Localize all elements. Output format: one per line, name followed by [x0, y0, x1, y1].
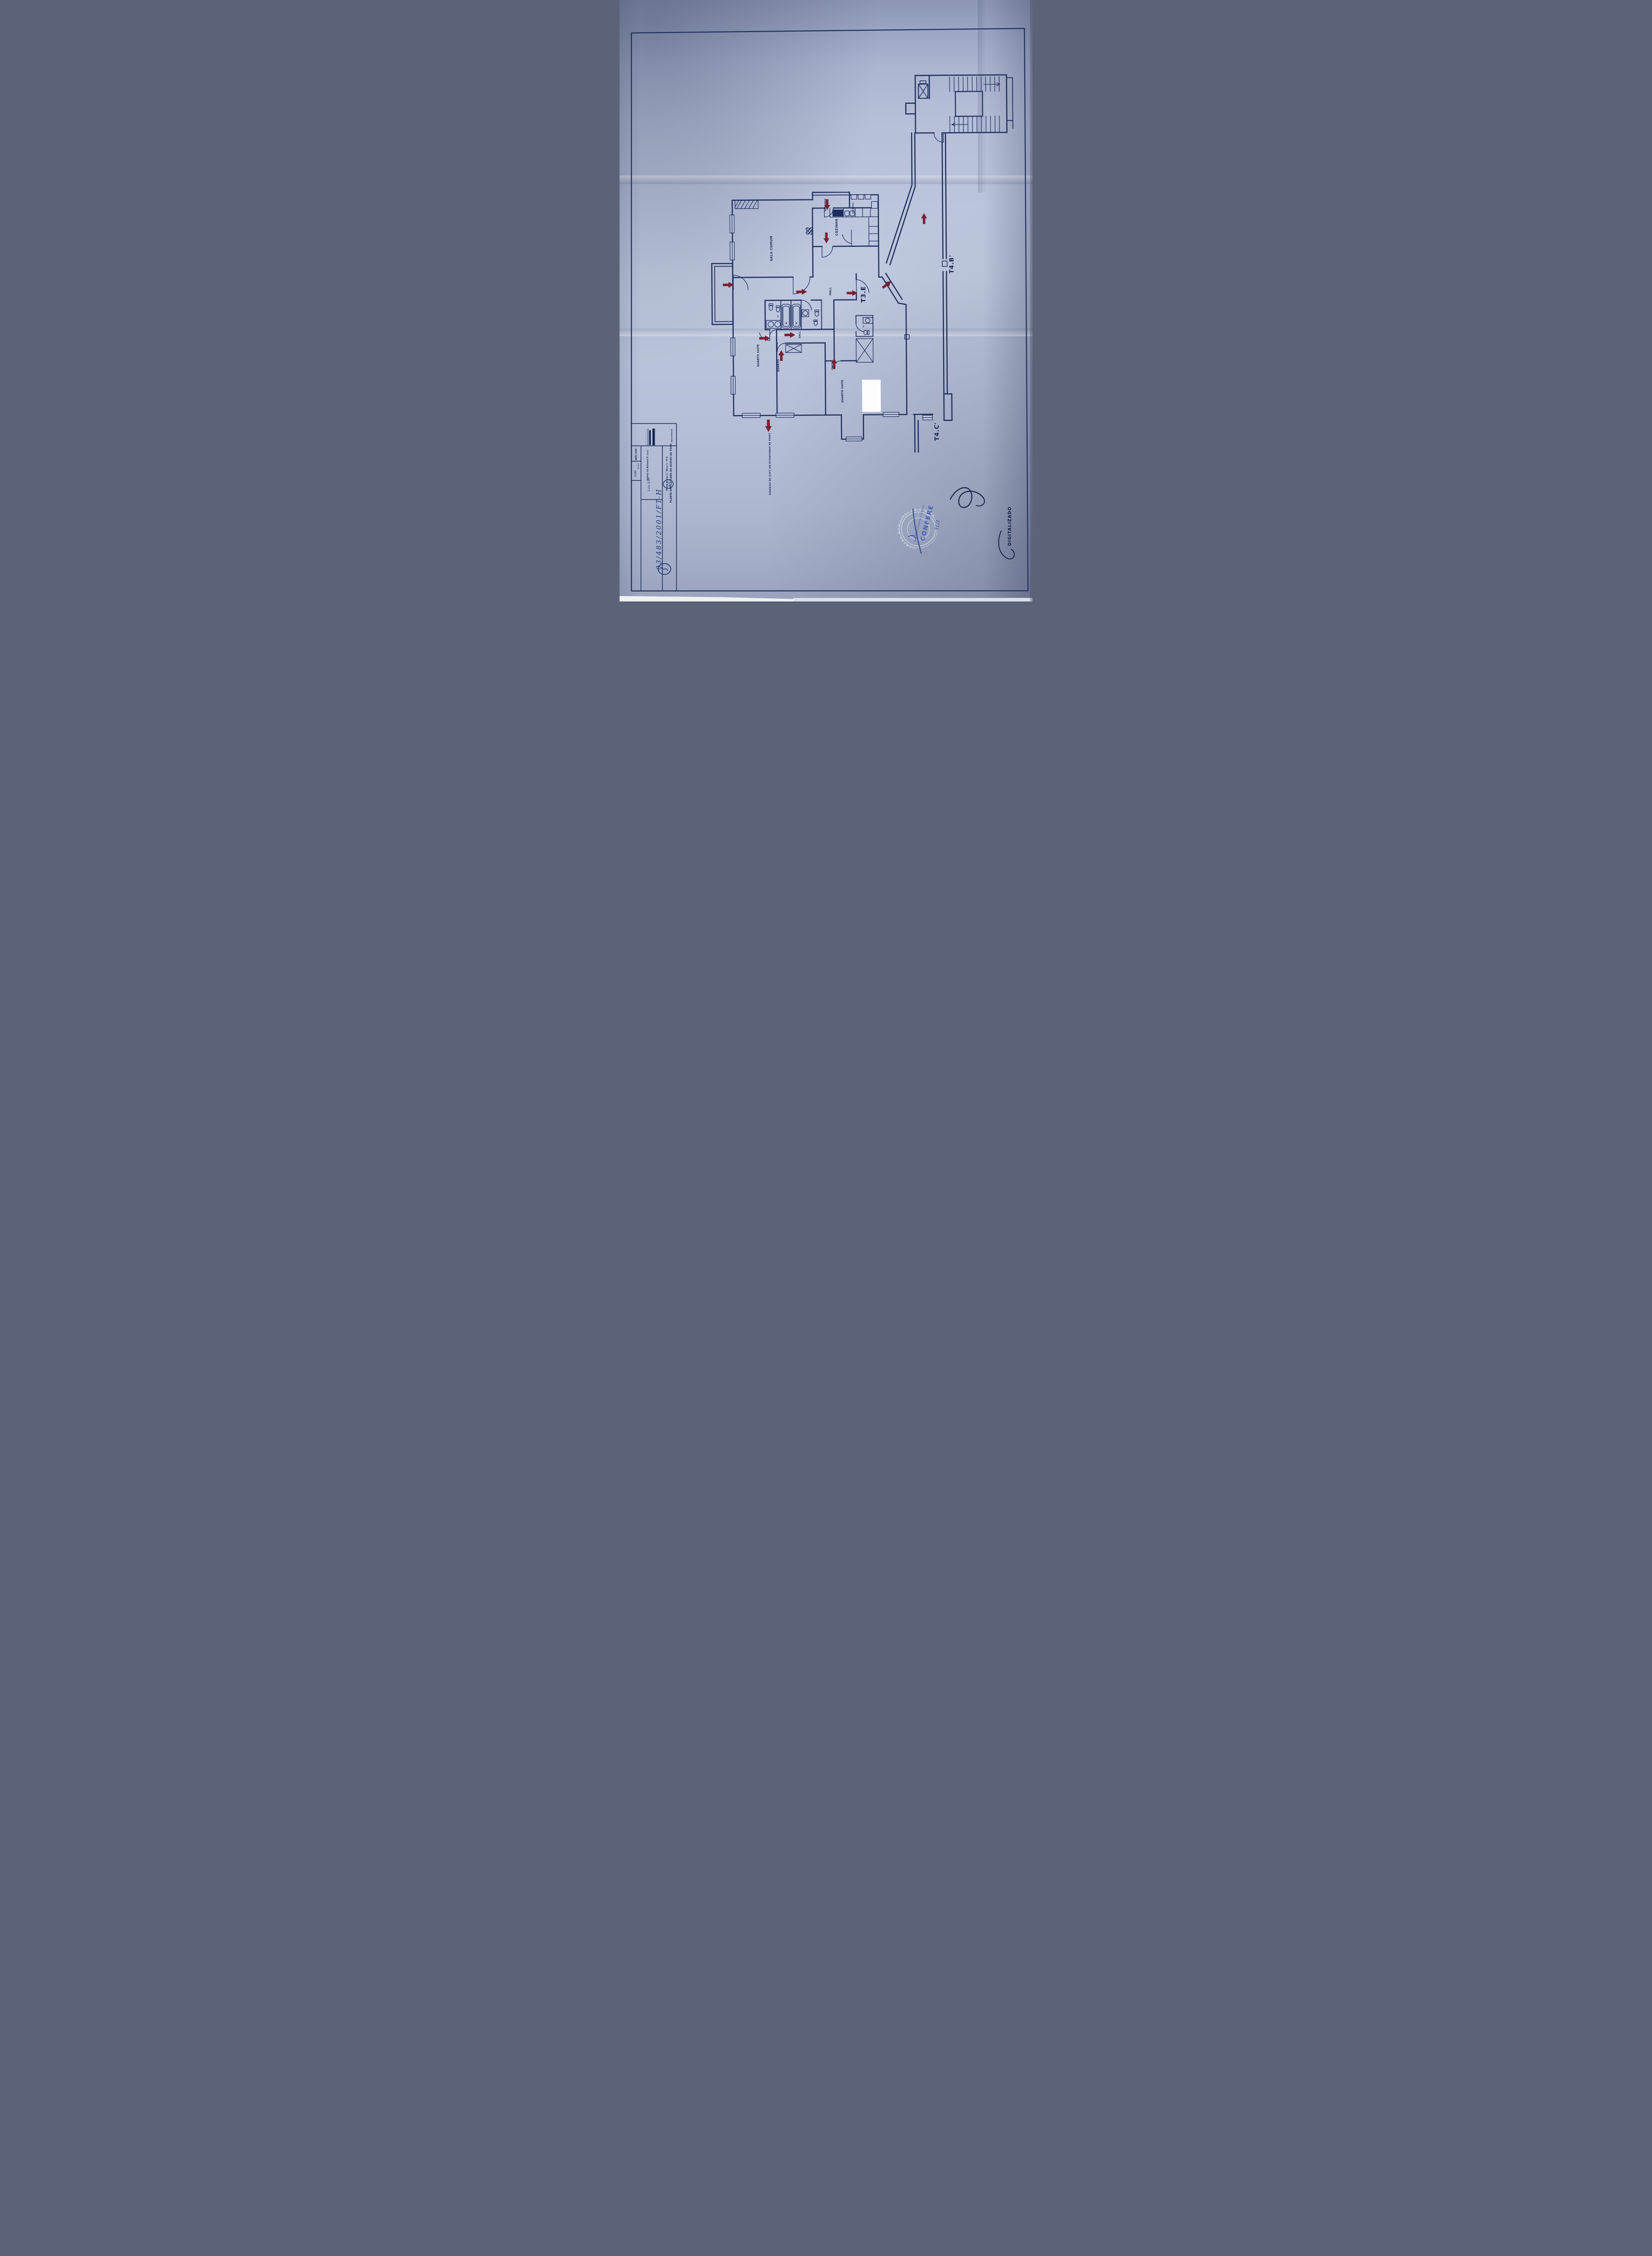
redaction-patch	[862, 380, 881, 412]
exit-arrow	[784, 332, 795, 338]
plan-title: PLANTA SIMPLIFICADA DO ACESSO AO FOGO	[670, 443, 673, 503]
sink-icon	[845, 211, 849, 216]
requerente-logo	[646, 429, 655, 445]
local-label: LOCAL	[647, 449, 648, 456]
scale-value: 1:100	[634, 471, 637, 477]
doors	[733, 208, 870, 371]
room-label-is2: I.S.	[863, 325, 865, 328]
balcony-hatch	[735, 200, 758, 209]
handwritten-signature	[950, 488, 1014, 559]
unit-label-t3e: T3.E	[860, 286, 867, 303]
paper-edge-shadow	[1030, 0, 1032, 601]
wardrobes	[786, 338, 873, 363]
svg-text:Lote EA6: Lote EA6	[647, 477, 651, 491]
room-label-sala: SALA COMUM	[769, 236, 773, 261]
washbasin-icon	[865, 318, 870, 323]
paper-edge	[620, 596, 796, 601]
room-label-hall: HALL	[829, 287, 832, 296]
room-label-varanda: VARANDA	[824, 199, 827, 211]
room-label-cozinha: COZINHA	[835, 218, 838, 236]
cooktop-icon	[806, 227, 813, 234]
toilet-icon	[864, 330, 867, 335]
requerente-label: REQUERENTE	[671, 429, 673, 443]
stair-core	[906, 75, 1013, 143]
exit-arrow	[796, 289, 807, 295]
emergency-note: SAÍDA DE EMERGÊNCIA EM CASO DE INCÊNDIO	[768, 433, 772, 495]
exit-arrow	[921, 213, 927, 224]
emergency-exit-arrow	[765, 420, 772, 432]
local-value: Quinta da Beloura II	[646, 457, 649, 481]
handwritten-reference: 03/483/2001/FT-H 21 Lote EA6	[647, 477, 673, 574]
room-label-is1: I.S.	[777, 314, 779, 317]
digitalizado-label: DIGITALIZADO	[1007, 506, 1012, 546]
exit-arrow	[881, 279, 893, 290]
svg-text:21: 21	[666, 481, 671, 487]
unit-label-t4c: T4.C'	[934, 422, 940, 441]
exit-arrow	[723, 282, 734, 288]
room-label-estendal: ESTENDAL	[852, 202, 854, 214]
paper-edge	[793, 598, 1032, 601]
room-labels: SALA COMUM COZINHA VARANDA ESTENDAL HALL…	[756, 198, 957, 496]
scale-label: ESCALA	[637, 463, 639, 469]
bathroom-fixtures	[766, 303, 873, 336]
room-label-quarto-suite2: QUARTO SUITE	[841, 380, 844, 403]
kitchen-fixtures	[806, 208, 879, 246]
room-label-quarto-suite: QUARTO SUITE	[757, 344, 760, 367]
municipal-stamp: CÂMARA MUNICIPAL DE SINTRA CONFERE Está …	[897, 504, 941, 554]
scanned-blueprint-page: SALA COMUM COZINHA VARANDA ESTENDAL HALL…	[620, 0, 1032, 601]
floor-plan-scan: SALA COMUM COZINHA VARANDA ESTENDAL HALL…	[620, 0, 1032, 601]
unit-label-t4b: T4.B'	[949, 255, 955, 274]
room-label-hall2: HALL	[799, 331, 801, 338]
exit-arrow	[824, 232, 829, 243]
date-value: ABRIL 2008	[635, 448, 637, 460]
washbasin-icon	[803, 311, 808, 316]
title-block: REQUERENTE PLANTA SIMPLIFICADA DO ACESSO…	[631, 424, 676, 591]
washbasin-icon	[768, 321, 774, 327]
stamp-handwritten-date: 31/3	[934, 520, 941, 531]
windows	[730, 194, 933, 442]
stair-steps	[949, 77, 1000, 132]
bidet-icon	[776, 307, 780, 312]
sheet-border	[631, 28, 1028, 591]
svg-text:03/483/2001/FT-H: 03/483/2001/FT-H	[656, 488, 663, 570]
stove-icon	[833, 210, 843, 216]
room-label-quarto: QUARTO	[777, 359, 780, 372]
corridor-walls	[885, 133, 952, 452]
